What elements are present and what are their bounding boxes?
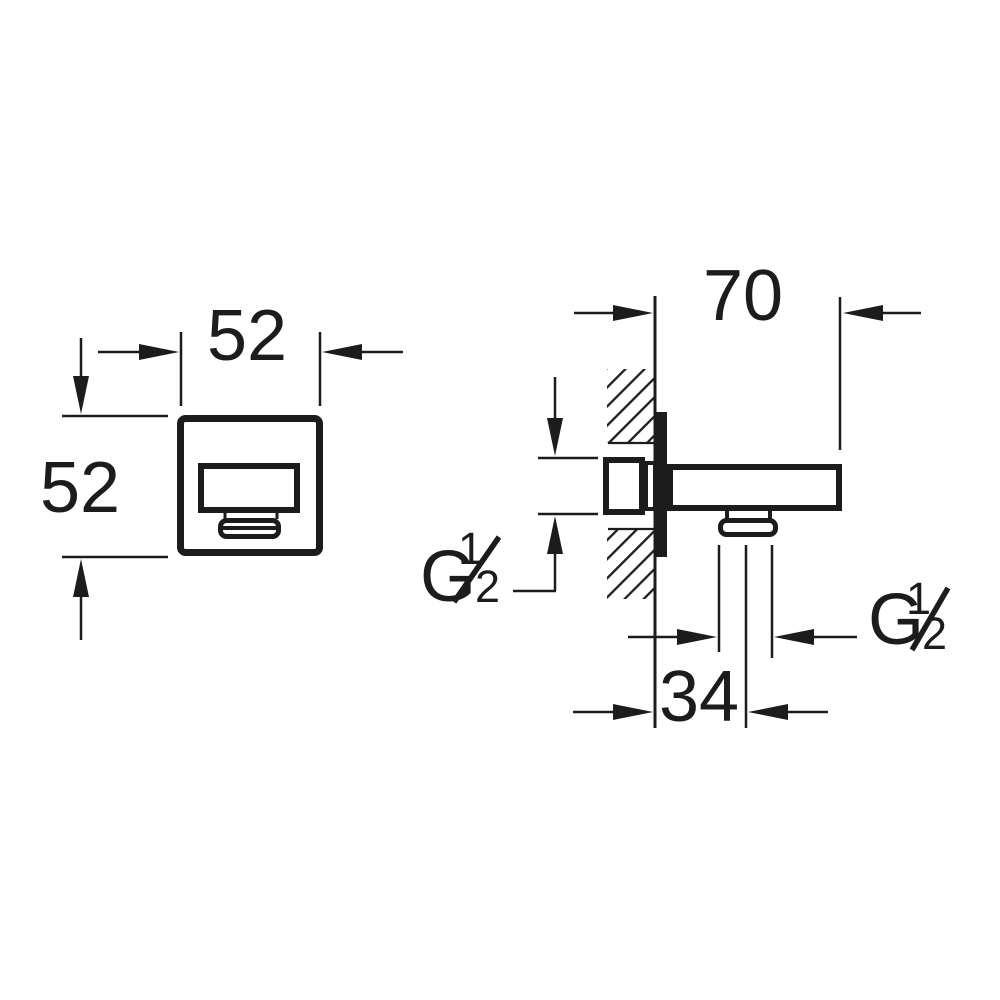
arrowhead-right-icon <box>677 629 717 645</box>
dim-front-width: 52 <box>98 296 403 406</box>
hose-nipple <box>721 521 776 535</box>
outlet-thread-denominator: 2 <box>922 608 947 659</box>
depth-label: 70 <box>703 256 783 336</box>
arrowhead-left-icon <box>748 704 788 720</box>
mounting-flange <box>654 412 667 557</box>
arrowhead-left-icon <box>322 344 362 360</box>
front-view <box>181 419 320 553</box>
arrowhead-down-icon <box>73 376 89 414</box>
arrowhead-up-icon <box>547 516 563 554</box>
arrowhead-up-icon <box>73 559 89 597</box>
front-view-outlet-face <box>201 466 297 510</box>
technical-drawing-canvas: 52 52 <box>0 0 1000 1000</box>
outlet-offset-label: 34 <box>659 657 739 737</box>
front-height-label: 52 <box>40 448 120 528</box>
arrowhead-left-icon <box>843 305 883 321</box>
wall-outlet-dimension-drawing: 52 52 <box>0 0 1000 1000</box>
arrowhead-right-icon <box>613 305 653 321</box>
arrowhead-right-icon <box>139 344 179 360</box>
arrowhead-right-icon <box>613 704 653 720</box>
dim-inlet-thread: G 1 2 <box>420 377 598 617</box>
dim-front-height: 52 <box>40 338 168 640</box>
wall-hatch-upper <box>607 369 654 443</box>
wall-hatch-lower <box>607 529 654 599</box>
dim-outlet-thread: G 1 2 <box>628 545 948 660</box>
outlet-thread-label: G 1 2 <box>868 573 948 660</box>
wall-union-nut <box>606 460 642 512</box>
front-width-label: 52 <box>207 296 287 376</box>
arrowhead-left-icon <box>774 629 814 645</box>
inlet-thread-label: G 1 2 <box>420 523 500 617</box>
arrowhead-down-icon <box>547 418 563 456</box>
inlet-thread-denominator: 2 <box>475 561 500 612</box>
spout-arm <box>670 467 839 508</box>
inlet-neck <box>646 463 655 509</box>
